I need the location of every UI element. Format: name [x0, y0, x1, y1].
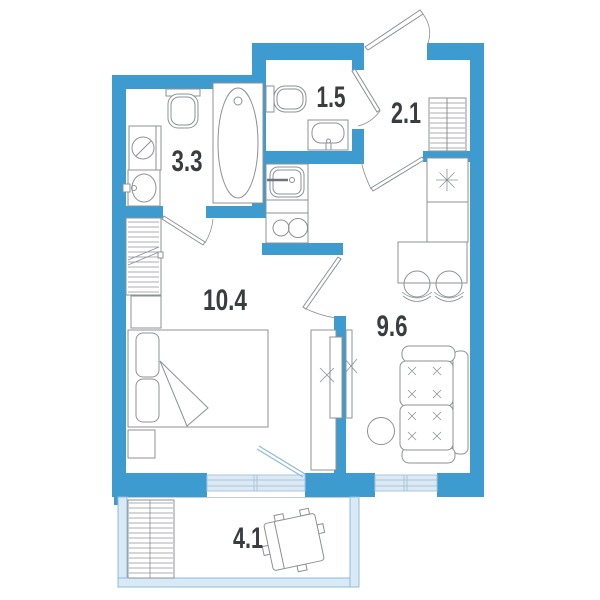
hall-kitchen-door — [361, 157, 424, 191]
balcony-door-leaf — [257, 446, 305, 477]
wall-bath-bottom-left — [112, 206, 163, 218]
bathroom-door-leaf — [162, 216, 205, 245]
fridge-icon — [427, 158, 468, 202]
dining-set — [398, 242, 467, 302]
wall-bottom-left — [112, 473, 207, 497]
stove-icon — [266, 213, 308, 243]
wall-top-toilet — [252, 43, 364, 60]
shelf-unit — [131, 296, 161, 328]
hall-wardrobe — [429, 98, 466, 151]
nightstand — [128, 430, 155, 458]
tv-unit-kitchen-side — [345, 330, 357, 418]
balcony-glazing-left — [118, 497, 127, 586]
entry-door — [365, 10, 430, 50]
pillow — [136, 379, 159, 422]
toilet-door-arc — [358, 111, 380, 126]
entry-door-leaf — [365, 10, 423, 50]
toilet-door-leaf — [352, 69, 380, 112]
label-kitchen-area: 9.6 — [377, 310, 408, 343]
pillow — [136, 333, 159, 377]
chair — [404, 271, 430, 297]
kitchen-fixtures — [266, 158, 468, 463]
bedroom-furniture — [126, 218, 342, 470]
kitchen-sink-icon — [267, 167, 304, 197]
wall-bottom-right — [437, 473, 484, 497]
label-balcony-area: 4.1 — [233, 522, 263, 555]
kitchen-counter-2 — [427, 202, 468, 242]
toilet-icon — [166, 89, 200, 128]
wall-bath-bottom-right — [206, 206, 266, 218]
window-bedroom-balcony — [207, 475, 305, 491]
floor-plan-canvas: 3.3 1.5 2.1 10.4 9.6 4.1 — [0, 0, 600, 600]
wall-right — [470, 43, 484, 497]
label-bathroom-area: 3.3 — [172, 145, 203, 178]
hall-kitchen-door-leaf — [371, 157, 424, 191]
hall-kitchen-door-arc — [361, 160, 371, 189]
bathroom-door — [162, 216, 213, 245]
ac-unit-icon — [256, 506, 331, 578]
bathroom-door-arc — [205, 219, 213, 243]
bedroom-door-leaf — [303, 257, 341, 309]
washing-machine-icon — [129, 126, 161, 170]
bedroom-door-arc — [304, 308, 336, 318]
dining-table — [398, 242, 467, 283]
bedroom-wardrobe — [126, 218, 163, 295]
bathtub-icon — [213, 83, 263, 203]
coffee-table — [368, 418, 395, 445]
bedroom-door — [303, 257, 341, 318]
chair — [436, 271, 462, 297]
wall-left — [112, 75, 126, 497]
label-hallway-area: 2.1 — [391, 97, 421, 130]
balcony-glazing-bottom — [118, 578, 359, 587]
wall-toilet-right-lower — [352, 129, 364, 164]
sofa-icon — [400, 346, 468, 463]
toilet-door — [352, 69, 380, 126]
bed-icon — [128, 330, 268, 427]
balcony-ladder — [128, 500, 174, 578]
hallway-furniture — [429, 98, 466, 151]
wall-stub-entry-left — [352, 60, 364, 70]
wall-kitchen-strip-bottom — [262, 243, 343, 255]
balcony-glazing-right — [350, 497, 359, 587]
window-kitchen — [375, 475, 437, 491]
balcony-items — [128, 500, 332, 578]
bathroom-sink-icon — [123, 170, 160, 206]
small-sink-icon — [308, 120, 348, 150]
floor-plan-page: 3.3 1.5 2.1 10.4 9.6 4.1 — [0, 0, 600, 600]
wc-icon — [266, 86, 306, 112]
label-toilet-area: 1.5 — [317, 81, 346, 114]
label-bedroom-area: 10.4 — [203, 284, 247, 317]
wall-below-toilet — [252, 151, 353, 164]
entry-door-arc — [423, 14, 430, 46]
wall-bottom-mid — [305, 473, 375, 497]
